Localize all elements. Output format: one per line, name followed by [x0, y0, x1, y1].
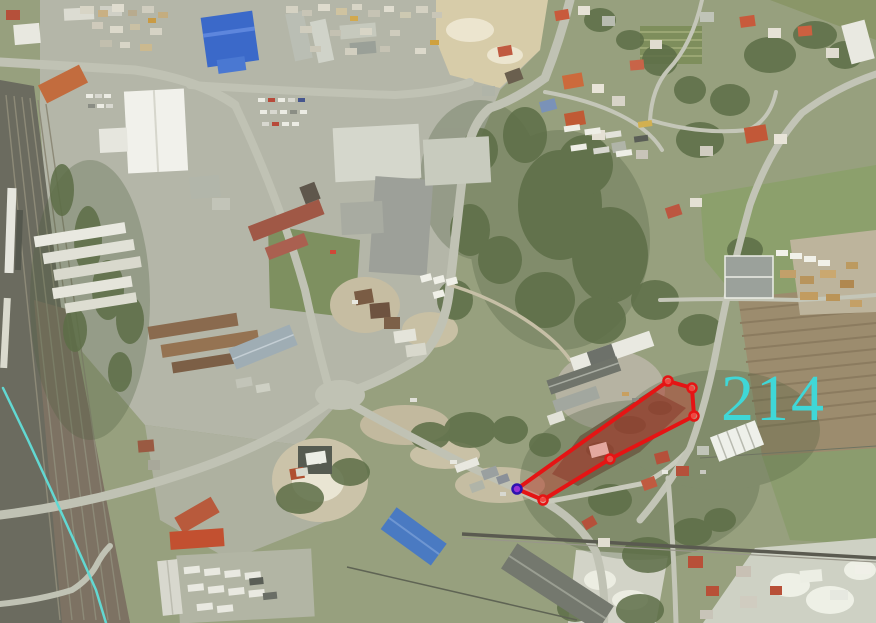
parcel-vertex-marker[interactable]: [539, 496, 548, 505]
map-viewport[interactable]: 214: [0, 0, 876, 623]
parcel-vertex-marker[interactable]: [688, 384, 697, 393]
parcel-number-label: 214: [721, 362, 826, 435]
selected-vertex-marker[interactable]: [513, 485, 522, 494]
parcel-vertex-marker[interactable]: [606, 455, 615, 464]
aerial-photo[interactable]: 214: [0, 0, 876, 623]
parcel-vertex-marker[interactable]: [690, 412, 699, 421]
parcel-vertex-marker[interactable]: [664, 377, 673, 386]
